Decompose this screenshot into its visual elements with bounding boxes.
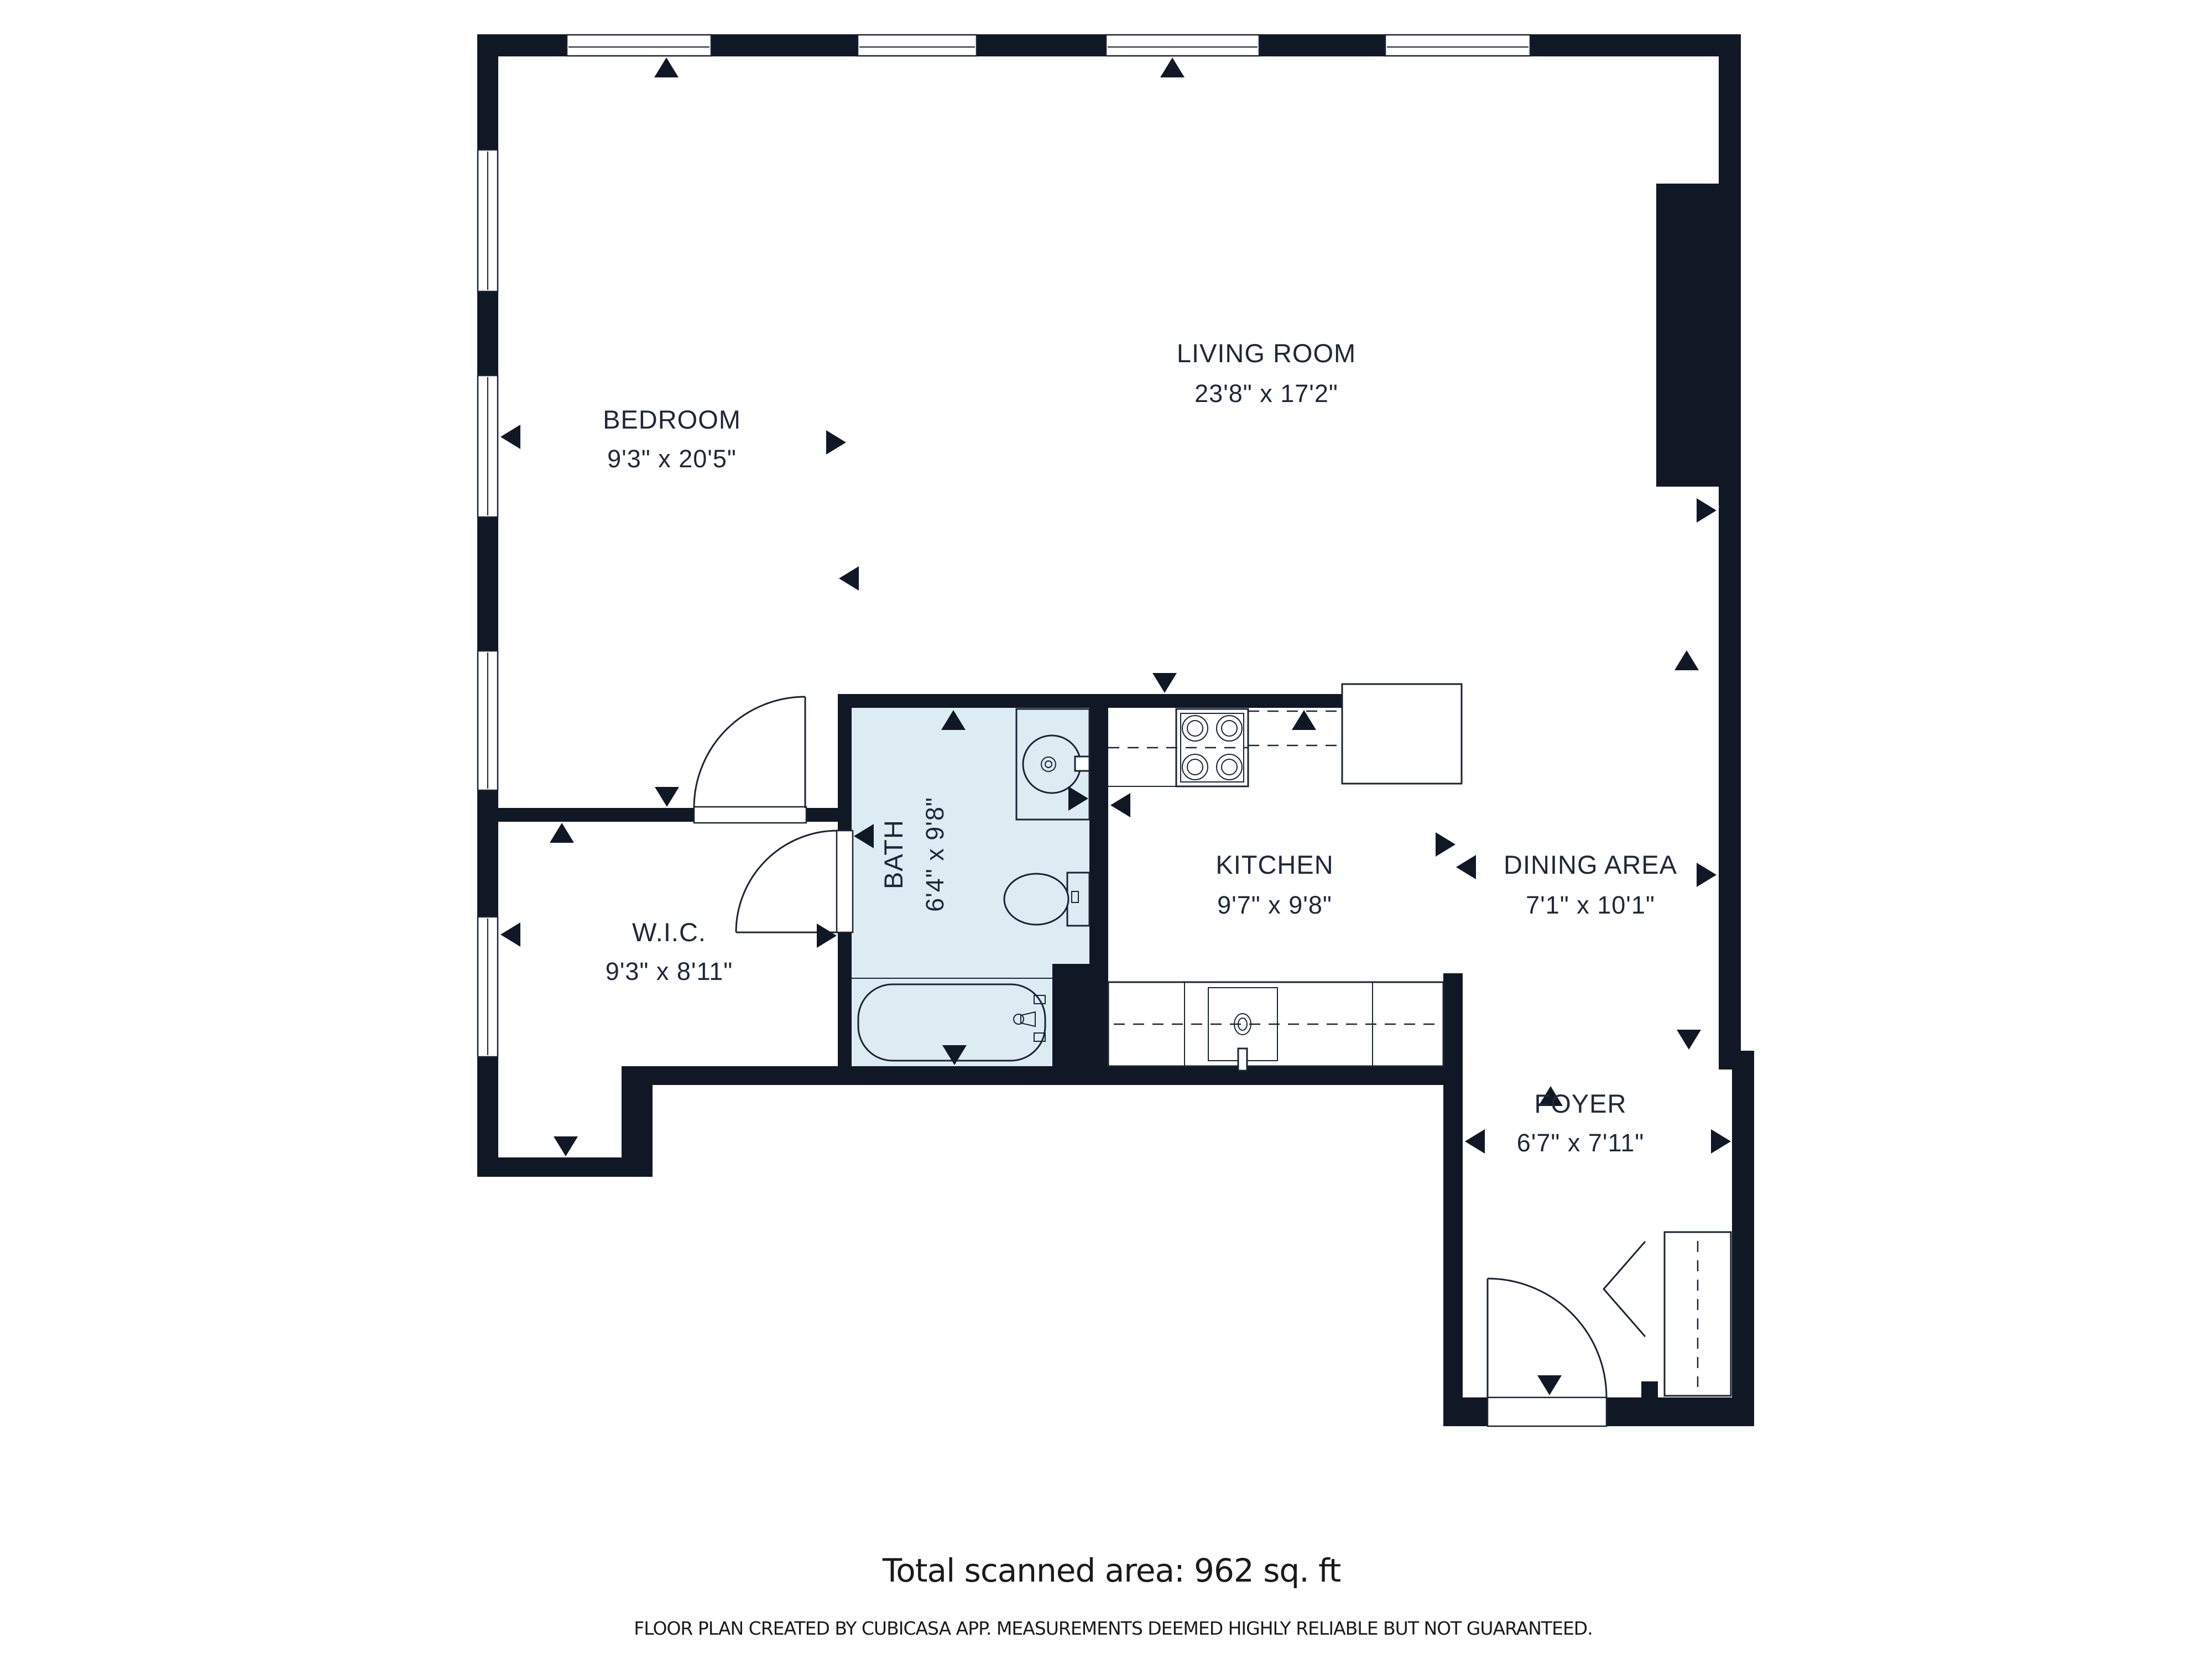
- measure-arrow: [1537, 1375, 1562, 1395]
- measure-arrow: [1697, 863, 1717, 887]
- measure-arrow: [1292, 710, 1316, 730]
- window: [1106, 35, 1259, 56]
- measure-arrow: [500, 425, 520, 449]
- room-dims-dining: 7'1" x 10'1": [1526, 891, 1655, 919]
- bedroom-door: [694, 697, 805, 808]
- measure-arrow: [1152, 673, 1177, 693]
- wall-chase: [1656, 184, 1741, 487]
- wic-bath-door: [736, 831, 838, 932]
- wall-bath-block: [1052, 964, 1089, 1066]
- room-label-living: LIVING ROOM: [1177, 338, 1356, 368]
- wall-bedroom-divider-right: [806, 808, 838, 822]
- wall-foyer-left: [1443, 973, 1463, 1426]
- room-dims-wic: 9'3" x 8'11": [606, 957, 733, 985]
- door-sills: [694, 807, 1606, 1426]
- wall-bath-right: [1089, 694, 1108, 1066]
- measure-arrow: [554, 1136, 578, 1156]
- wic-bath-door-sill: [837, 831, 853, 932]
- floorplan-canvas: BEDROOM 9'3" x 20'5" LIVING ROOM 23'8" x…: [0, 0, 2212, 1659]
- measure-arrow: [1465, 1129, 1485, 1154]
- door-swing: [736, 831, 838, 932]
- room-dims-foyer: 6'7" x 7'11": [1517, 1129, 1644, 1157]
- measure-arrow: [817, 924, 837, 948]
- measure-arrow: [839, 566, 859, 591]
- room-label-bath: BATH: [879, 820, 908, 889]
- measure-arrow: [500, 922, 520, 947]
- measure-arrow: [1160, 58, 1185, 77]
- window: [1385, 35, 1530, 56]
- walls: [477, 34, 1754, 1426]
- measure-arrow: [1711, 1129, 1731, 1154]
- entry-door-sill: [1488, 1397, 1606, 1426]
- window: [858, 35, 977, 56]
- measure-arrow: [1677, 1030, 1701, 1050]
- disclaimer-text: FLOOR PLAN CREATED BY CUBICASA APP. MEAS…: [634, 1618, 1592, 1639]
- measure-arrow: [1110, 793, 1130, 817]
- kitchen-faucet: [1238, 1048, 1247, 1071]
- wall-bath-left-upper: [838, 708, 852, 831]
- measure-arrow: [655, 787, 679, 807]
- measure-arrows: [500, 58, 1731, 1395]
- wall-right-lower: [1732, 1051, 1754, 1426]
- room-label-foyer: FOYER: [1535, 1089, 1627, 1118]
- wall-foyer-bottom-right: [1606, 1397, 1754, 1426]
- closet-body: [1665, 1232, 1731, 1396]
- total-area-text: Total scanned area: 962 sq. ft: [882, 1552, 1341, 1589]
- wall-entry-stub: [1641, 1381, 1658, 1399]
- room-label-dining: DINING AREA: [1504, 850, 1677, 879]
- measure-arrow: [1456, 855, 1476, 879]
- sink-faucet: [1075, 757, 1089, 771]
- room-label-wic: W.I.C.: [632, 917, 706, 947]
- measure-arrow: [1697, 498, 1717, 523]
- closet-door-chevron: [1604, 1241, 1645, 1337]
- wall-bath-left-lower: [838, 932, 852, 1066]
- bedroom-door-sill: [694, 807, 806, 823]
- wall-bottom-main: [622, 1066, 1463, 1085]
- room-label-kitchen: KITCHEN: [1215, 850, 1333, 879]
- window: [567, 35, 711, 56]
- room-label-bedroom: BEDROOM: [603, 405, 741, 434]
- measure-arrow: [1674, 650, 1699, 670]
- measure-arrow: [654, 58, 679, 77]
- room-dims-bedroom: 9'3" x 20'5": [607, 445, 737, 473]
- measure-arrow: [550, 823, 574, 843]
- room-dims-bath: 6'4" x 9'8": [921, 797, 949, 912]
- wall-right-jog: [1719, 1051, 1754, 1070]
- wall-foyer-bottom-left: [1443, 1397, 1488, 1426]
- toilet-bowl: [1004, 874, 1068, 925]
- room-dims-living: 23'8" x 17'2": [1194, 379, 1338, 408]
- room-dims-kitchen: 9'7" x 9'8": [1217, 891, 1332, 919]
- wall-bedroom-divider-left: [498, 808, 694, 822]
- door-swing: [694, 697, 805, 808]
- foyer-closet: [1665, 1232, 1731, 1396]
- measure-arrow: [826, 430, 846, 455]
- measure-arrow: [1436, 832, 1455, 857]
- peninsula-counter: [1342, 684, 1462, 784]
